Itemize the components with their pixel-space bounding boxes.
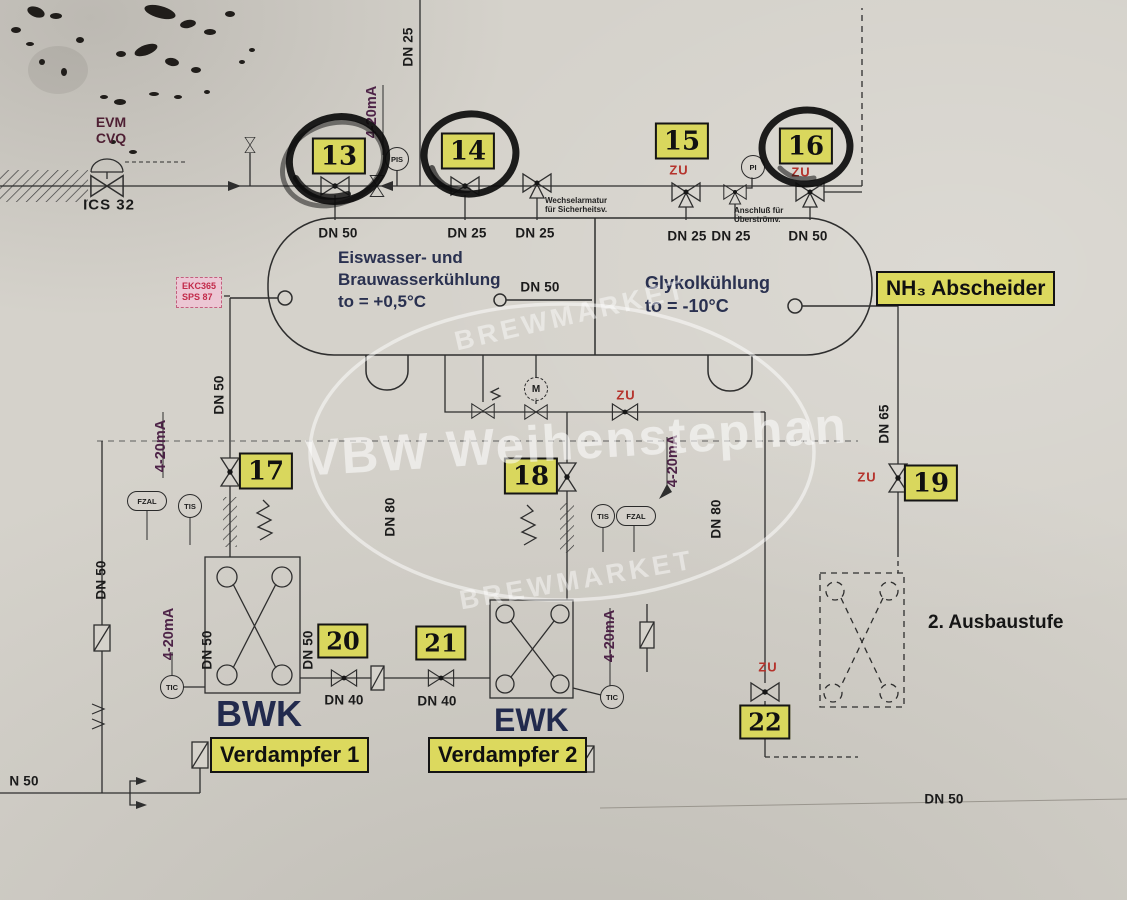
dn25-nozzle-overflow: DN 25: [711, 229, 750, 243]
zu-flag-22: ZU: [758, 661, 777, 674]
small-vent-valve: [245, 137, 255, 152]
dn80-left: DN 80: [383, 497, 397, 536]
zu-flag-19: ZU: [857, 471, 876, 484]
ewk-exchanger: [490, 600, 573, 698]
hand-valve: [472, 404, 494, 418]
tag-21: 21: [415, 626, 466, 661]
bwk-exchanger: [205, 557, 300, 693]
dn25-nozzle-15: DN 25: [667, 229, 706, 243]
dn50-lower-left: DN 50: [94, 560, 108, 599]
zu-flag-mid: ZU: [616, 389, 635, 402]
tic-instrument-left: TIC: [160, 675, 184, 699]
ics32-label: ICS 32: [83, 198, 135, 213]
zu-flag-15: ZU: [669, 164, 688, 177]
pis-instrument: PIS: [385, 147, 409, 171]
dn50-nozzle-16: DN 50: [788, 229, 827, 243]
signal-4-20ma-ewk: 4-20mA: [603, 610, 618, 662]
tag-13: 13: [312, 138, 366, 175]
fzal-instrument-right: FZAL: [616, 506, 656, 526]
dn25-nozzle-14: DN 25: [447, 226, 486, 240]
pid-diagram-photo: EVM CVQ ICS 32 DN 25 4-20mA 13 14 15 16 …: [0, 0, 1127, 900]
dn40-valve20: DN 40: [324, 693, 363, 707]
wechselarmatur-note-line2: für Sicherheitsv.: [545, 205, 607, 215]
nh3-abscheider-label: NH₃ Abscheider: [876, 271, 1055, 306]
photo-stains: [11, 2, 255, 154]
tag-20: 20: [317, 624, 368, 659]
dn50-bwk-left: DN 50: [200, 630, 214, 669]
vessel-left-line3: to = +0,5°C: [338, 291, 501, 313]
valve-17: [221, 458, 239, 486]
dn80-right: DN 80: [709, 499, 723, 538]
pi-instrument: PI: [741, 155, 765, 179]
tag-19: 19: [904, 465, 958, 502]
ewk-label: EWK: [494, 704, 569, 736]
ausbaustufe-note: 2. Ausbaustufe: [928, 612, 1064, 634]
future-exchanger: [820, 573, 904, 707]
ekc-line2: SPS 87: [182, 292, 216, 303]
ics32-control-valve: [91, 159, 123, 196]
signal-4-20ma-top: 4-20mA: [365, 86, 380, 138]
tis-instrument-right: TIS: [591, 504, 615, 528]
tag-15: 15: [655, 123, 709, 160]
zu-flag-16: ZU: [791, 166, 810, 179]
tag-22: 22: [739, 705, 790, 740]
ekc-line1: EKC365: [182, 281, 216, 292]
tag-14: 14: [441, 133, 495, 170]
tic-instrument-right: TIC: [600, 685, 624, 709]
dn50-bwk-right: DN 50: [301, 630, 315, 669]
overflow-valve: [724, 185, 746, 204]
tag-17: 17: [239, 453, 293, 490]
fzal-instrument-left: FZAL: [127, 491, 167, 511]
dn50-left-drop: DN 50: [212, 375, 226, 414]
vessel-left-section-text: Eiswasser- und Brauwasserkühlung to = +0…: [338, 247, 501, 313]
anschluss-note-line2: Überströmv.: [734, 215, 781, 225]
verdampfer1-label: Verdampfer 1: [210, 737, 369, 773]
tis-instrument-left: TIS: [178, 494, 202, 518]
motor-actuator: M: [524, 377, 548, 401]
ekc-controller-label: EKC365 SPS 87: [176, 277, 222, 308]
bwk-label: BWK: [216, 696, 302, 732]
evm-label: EVM: [96, 115, 126, 129]
signal-4-20ma-left: 4-20mA: [154, 420, 169, 472]
dn25-nozzle-safety: DN 25: [515, 226, 554, 240]
vessel-left-line2: Brauwasserkühlung: [338, 269, 501, 291]
dn50-internal-label: DN 50: [520, 280, 559, 294]
dn65-label: DN 65: [877, 404, 891, 443]
dn50-nozzle-13: DN 50: [318, 226, 357, 240]
dn25-riser-label: DN 25: [401, 27, 415, 66]
dn40-valve21: DN 40: [417, 694, 456, 708]
verdampfer2-label: Verdampfer 2: [428, 737, 587, 773]
vessel-left-line1: Eiswasser- und: [338, 247, 501, 269]
tag-16: 16: [779, 128, 833, 165]
n50-bottom-left: N 50: [9, 774, 38, 788]
cvq-label: CVQ: [96, 131, 126, 145]
valve-22: [751, 683, 779, 701]
signal-4-20ma-bwk: 4-20mA: [162, 608, 177, 660]
dn50-bottom-right: DN 50: [924, 792, 963, 806]
